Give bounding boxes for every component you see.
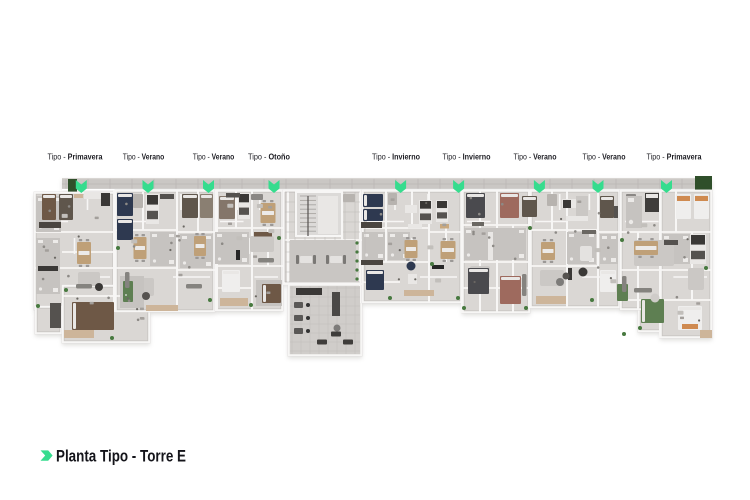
svg-text:Tipo - Invierno: Tipo - Invierno	[372, 152, 420, 162]
svg-text:Tipo - Verano: Tipo - Verano	[193, 152, 235, 162]
svg-text:Tipo - Primavera: Tipo - Primavera	[647, 152, 702, 162]
svg-text:Tipo - Verano: Tipo - Verano	[583, 152, 626, 162]
svg-text:Tipo - Invierno: Tipo - Invierno	[443, 152, 491, 162]
svg-text:Tipo - Verano: Tipo - Verano	[123, 152, 165, 162]
svg-text:Tipo - Verano: Tipo - Verano	[514, 152, 557, 162]
svg-text:Tipo - Primavera: Tipo - Primavera	[48, 152, 103, 162]
svg-text:Tipo - Otoño: Tipo - Otoño	[248, 152, 290, 162]
svg-text:Planta Tipo - Torre E: Planta Tipo - Torre E	[56, 447, 186, 465]
